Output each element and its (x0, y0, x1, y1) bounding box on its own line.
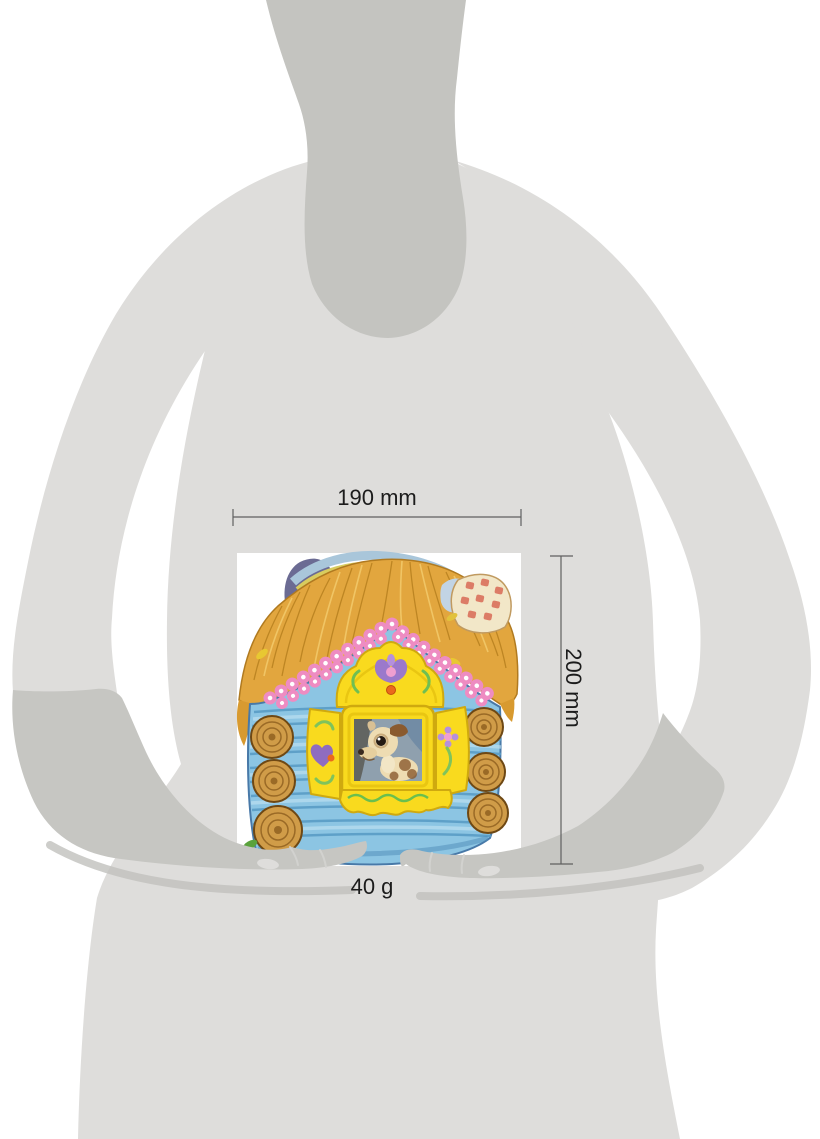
log-end (251, 716, 293, 758)
right-shutter-petal (438, 734, 445, 741)
log-end (468, 793, 508, 833)
puppy-spot (399, 759, 411, 771)
log-end (465, 708, 503, 746)
weight-label: 40 g (292, 874, 452, 900)
right-shutter-petal (445, 727, 452, 734)
log-end (467, 753, 505, 791)
log-end (254, 806, 302, 854)
puppy-spot (390, 772, 399, 781)
puppy-photo (354, 719, 422, 781)
right-shutter (436, 707, 469, 797)
crest-flower-heart (386, 667, 396, 677)
right-shutter-flower-center (444, 733, 452, 741)
crest-flower-top-petal (387, 654, 395, 666)
right-shutter-panel (436, 707, 469, 797)
width-label: 190 mm (233, 485, 521, 511)
puppy-eye-glint (378, 738, 381, 741)
puppy-eye (376, 736, 386, 746)
window (342, 706, 434, 803)
size-comparison-figure: 190 mm 200 mm 40 g (0, 0, 820, 1139)
puppy-nose (358, 749, 364, 755)
left-shutter-dot (328, 755, 335, 762)
right-shutter-petal (445, 741, 452, 748)
log-end (253, 760, 295, 802)
height-label: 200 mm (560, 648, 586, 727)
crest-flower-dot (387, 686, 396, 695)
puppy-spot (407, 769, 417, 779)
product-image (237, 553, 521, 866)
puppy-chest (381, 755, 395, 773)
left-shutter (307, 709, 340, 799)
right-shutter-petal (452, 734, 459, 741)
